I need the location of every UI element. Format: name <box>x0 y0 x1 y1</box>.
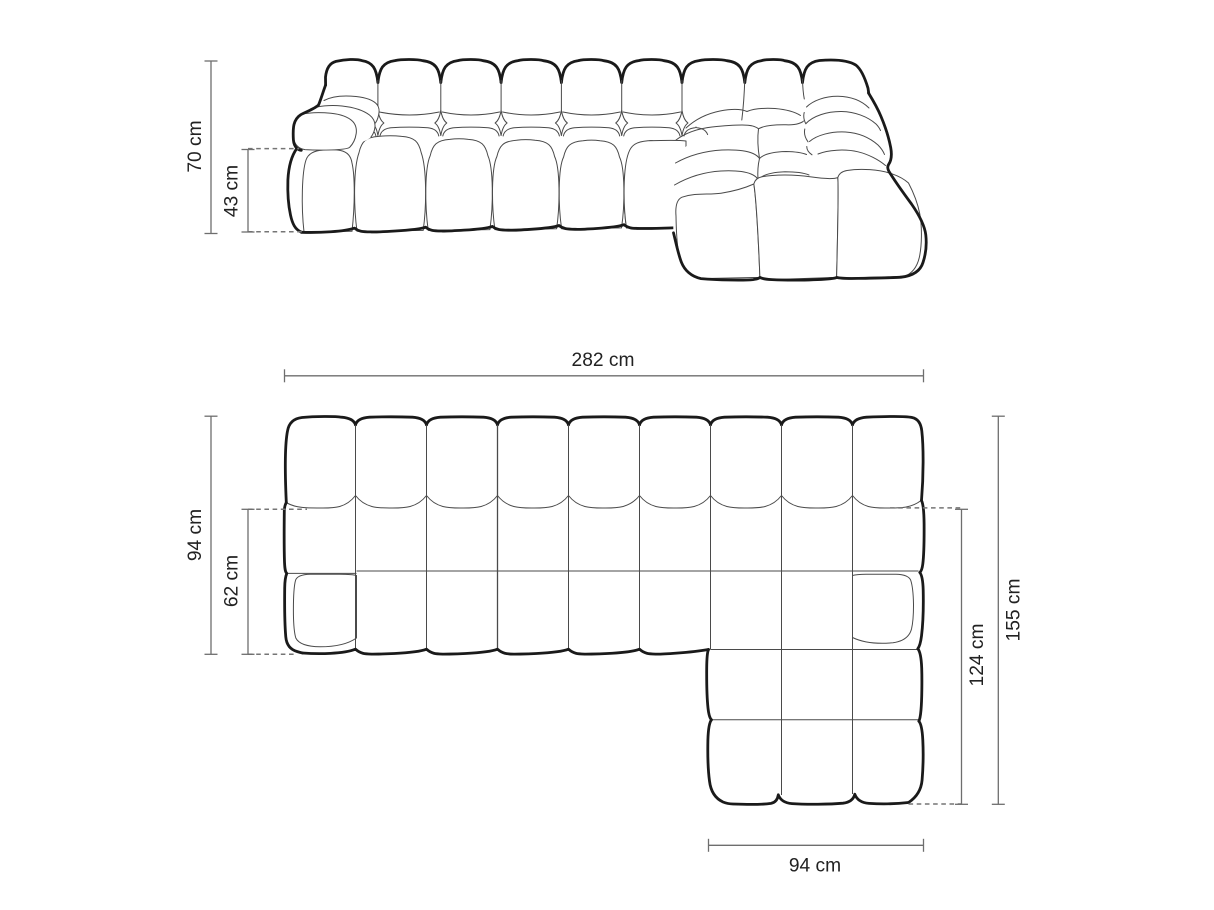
svg-text:62 cm: 62 cm <box>222 555 243 607</box>
svg-text:94 cm: 94 cm <box>789 856 841 877</box>
svg-text:94 cm: 94 cm <box>185 509 206 561</box>
svg-text:124 cm: 124 cm <box>967 624 988 687</box>
svg-text:155 cm: 155 cm <box>1004 579 1025 642</box>
svg-text:282 cm: 282 cm <box>572 350 635 371</box>
svg-text:43 cm: 43 cm <box>222 165 243 217</box>
svg-text:70 cm: 70 cm <box>185 120 206 172</box>
